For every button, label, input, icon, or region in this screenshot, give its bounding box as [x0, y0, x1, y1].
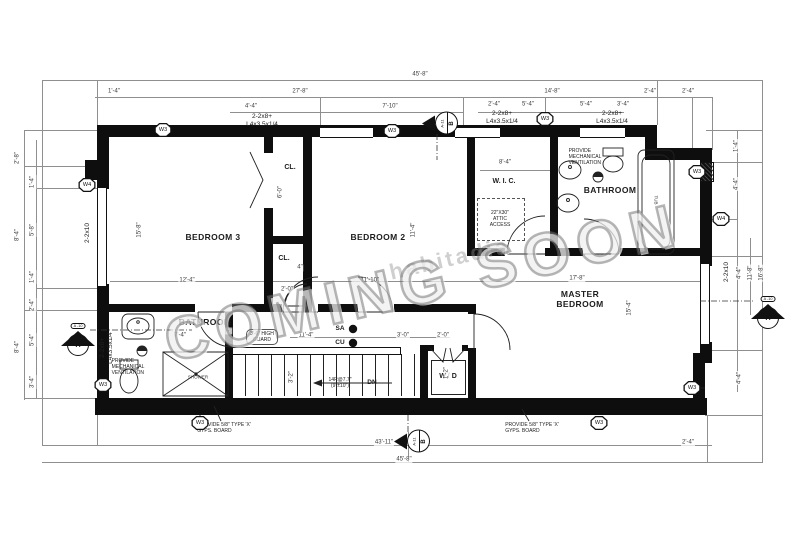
wall-type-marker-w3: W3	[591, 416, 608, 430]
dim-label: 7'-10"	[381, 103, 398, 110]
note-guard: 3'-6" HIGH GUARD	[246, 329, 278, 345]
room-label-closet-top: CL.	[284, 164, 295, 172]
dim-label: 1'-4"	[733, 139, 740, 153]
smoke-alarm-dot	[349, 325, 357, 333]
dim-label: 3'-0"	[396, 332, 410, 339]
dim-label: 3'-4"	[616, 101, 630, 108]
bifold-closet-top	[250, 152, 263, 208]
sink-left	[122, 314, 154, 339]
room-label-wic: W. I. C.	[493, 178, 516, 186]
dim-label: 2'-4"	[29, 298, 36, 312]
section-letter: B	[449, 121, 455, 125]
fixture-label-tub: TUB	[653, 196, 658, 205]
sheet-number: A -10	[71, 323, 86, 329]
section-bubble: A-11B	[435, 112, 458, 135]
note-attic-access: 22"X30" ATTIC ACCESS	[490, 210, 511, 228]
dim-label: 45'-8"	[395, 456, 412, 463]
wall-type-label: W3	[690, 166, 704, 177]
section-triangle-icon	[394, 433, 407, 449]
fan-left	[137, 346, 147, 356]
section-bubble: A-11B	[407, 430, 430, 453]
bifold-wd-1	[430, 348, 446, 362]
dim-label: 1'-4"	[29, 270, 36, 284]
note-mech-vent-left: PROVIDE MECHANICAL VENTILATION	[112, 358, 145, 376]
dim-label: 2'-4"	[681, 439, 695, 446]
dim-label: 2'-8"	[14, 151, 21, 165]
dim-label: 3'-4"	[29, 375, 36, 389]
wall-type-label: W3	[96, 379, 110, 390]
fan-right	[593, 172, 603, 182]
wall-type-label: W3	[685, 382, 699, 393]
note-mech-vent-right: PROVIDE MECHANICAL VENTILATION	[569, 148, 602, 166]
dim-label: 11'-8"	[747, 265, 754, 282]
dim-label: 4'-4"	[244, 103, 258, 110]
wall-type-marker-w3: W3	[384, 124, 401, 138]
dim-label: 15'-4"	[626, 299, 633, 316]
dim-label: 12'-4"	[178, 277, 195, 284]
wall-type-marker-w3: W3	[192, 416, 209, 430]
wall-type-label: W4	[714, 213, 728, 224]
dim-label: 45'-8"	[411, 71, 428, 78]
dim-label: 4'-4"	[736, 266, 743, 280]
dim-label: 17'-8"	[568, 275, 585, 282]
dim-label: 3'-2"	[288, 370, 295, 384]
dim-label: 4'-4"	[733, 177, 740, 191]
section-marker-b: A-11B	[422, 112, 458, 135]
beam-label-2: 2-2x8+ L4x3.5x1/4	[486, 110, 518, 126]
dim-label: 11'-10"	[360, 277, 380, 284]
wall-type-label: W3	[385, 125, 399, 136]
dim-label: 14'-8"	[543, 88, 560, 95]
wall-type-marker-w3: W3	[684, 381, 701, 395]
dim-label: 6'-0"	[277, 185, 284, 199]
wall-type-label: W3	[592, 417, 606, 428]
dim-label: 2'-4"	[487, 101, 501, 108]
dim-label: 2'-0"	[436, 332, 450, 339]
dim-label: 5'-4"	[29, 333, 36, 347]
sink-right-2	[557, 194, 579, 212]
wall-type-marker-w3: W3	[155, 123, 172, 137]
section-marker-a: A -10A	[751, 287, 785, 329]
dim-label: 8'-4"	[14, 228, 21, 242]
toilet-right	[603, 148, 623, 172]
note-gyps-board-right: PROVIDE 5/8" TYPE 'X' GYPS. BOARD	[505, 422, 559, 434]
wall-type-label: W4	[80, 179, 94, 190]
beam-label-1: 2-2x8+ L4x3.5x1/4	[246, 113, 278, 129]
fixtures-layer	[0, 0, 800, 533]
dim-label: 8'-4"	[14, 340, 21, 354]
wall-type-marker-w4: W4	[713, 212, 730, 226]
leader-gyps-left	[214, 406, 221, 421]
dim-label: 5'-8"	[29, 223, 36, 237]
dim-label: 8'-4"	[498, 159, 512, 166]
wall-type-marker-w3: W3	[689, 165, 706, 179]
beam-label-4: 2-2x8+ L4x3.5x1/4	[99, 332, 115, 364]
wall-type-label: W3	[538, 113, 552, 124]
dim-label: 4"	[225, 327, 232, 334]
room-label-closet-bottom: CL.	[278, 255, 289, 263]
label-down: DN	[367, 379, 376, 387]
fixture-label-shower: SHOWER	[188, 374, 208, 379]
beam-label-3: 2-2x8+ L4x3.5x1/4	[596, 110, 628, 126]
wall-type-marker-w3: W3	[537, 112, 554, 126]
room-label-bathroom-right: BATHROOM	[584, 185, 637, 195]
wall-type-label: W3	[156, 124, 170, 135]
dim-label: 2'-0"	[280, 286, 294, 293]
door-bathroom-right	[584, 219, 619, 254]
dim-label: 11'-4"	[410, 222, 417, 239]
joist-label-right: 2-2x10	[723, 262, 731, 282]
dim-label: 15'-8"	[136, 221, 143, 238]
dim-label: 4"	[296, 264, 303, 271]
co-detector-dot	[349, 339, 357, 347]
dim-label: 1'-4"	[107, 88, 121, 95]
dim-label: 5'-4"	[579, 101, 593, 108]
section-marker-a: A -10A	[61, 314, 95, 356]
label-co-detector: CU	[335, 339, 344, 347]
door-wic	[507, 216, 545, 254]
wall-type-marker-w3: W3	[95, 378, 112, 392]
note-stair-risers: 14R@7.7" (9"±10")	[329, 377, 352, 389]
dim-label: 7'-4"	[173, 332, 187, 339]
room-label-bedroom3: BEDROOM 3	[185, 232, 240, 242]
dim-label: 1'-2"	[443, 366, 450, 380]
sheet-number: A-11	[439, 119, 444, 127]
joist-label-left: 2-2x10	[84, 223, 92, 243]
dim-label: 43'-11"	[374, 439, 394, 446]
stair-down-arrow	[313, 380, 392, 387]
room-label-bathroom-left: BATHROOM	[179, 317, 232, 327]
label-smoke-alarm: SA	[335, 325, 344, 333]
dim-label: 1'-4"	[29, 175, 36, 189]
dim-label: 16'-8"	[758, 264, 765, 281]
room-label-master-bedroom: MASTER BEDROOM	[556, 289, 603, 309]
leader-gyps-right	[522, 409, 529, 421]
room-label-bedroom2: BEDROOM 2	[350, 232, 405, 242]
wall-type-label: W3	[193, 417, 207, 428]
door-master-bedroom	[474, 314, 510, 350]
sheet-number: A -10	[761, 296, 776, 302]
dim-label: 27'-8"	[291, 88, 308, 95]
bifold-wd-2	[450, 348, 466, 362]
section-letter: B	[421, 439, 427, 443]
dim-label: 2'-4"	[643, 88, 657, 95]
dim-label: 5'-4"	[521, 101, 535, 108]
sheet-number: A-11	[411, 437, 416, 445]
section-triangle-icon	[422, 115, 435, 131]
section-marker-b: A-11B	[394, 430, 430, 453]
dim-label: 4'-4"	[736, 371, 743, 385]
dim-label: 2'-4"	[681, 88, 695, 95]
wall-type-marker-w4: W4	[79, 178, 96, 192]
dim-label: 11'-4"	[298, 332, 315, 339]
floor-plan-drawing: COMING SOON habitadia BEDROOM 3BEDROOM 2…	[0, 0, 800, 533]
